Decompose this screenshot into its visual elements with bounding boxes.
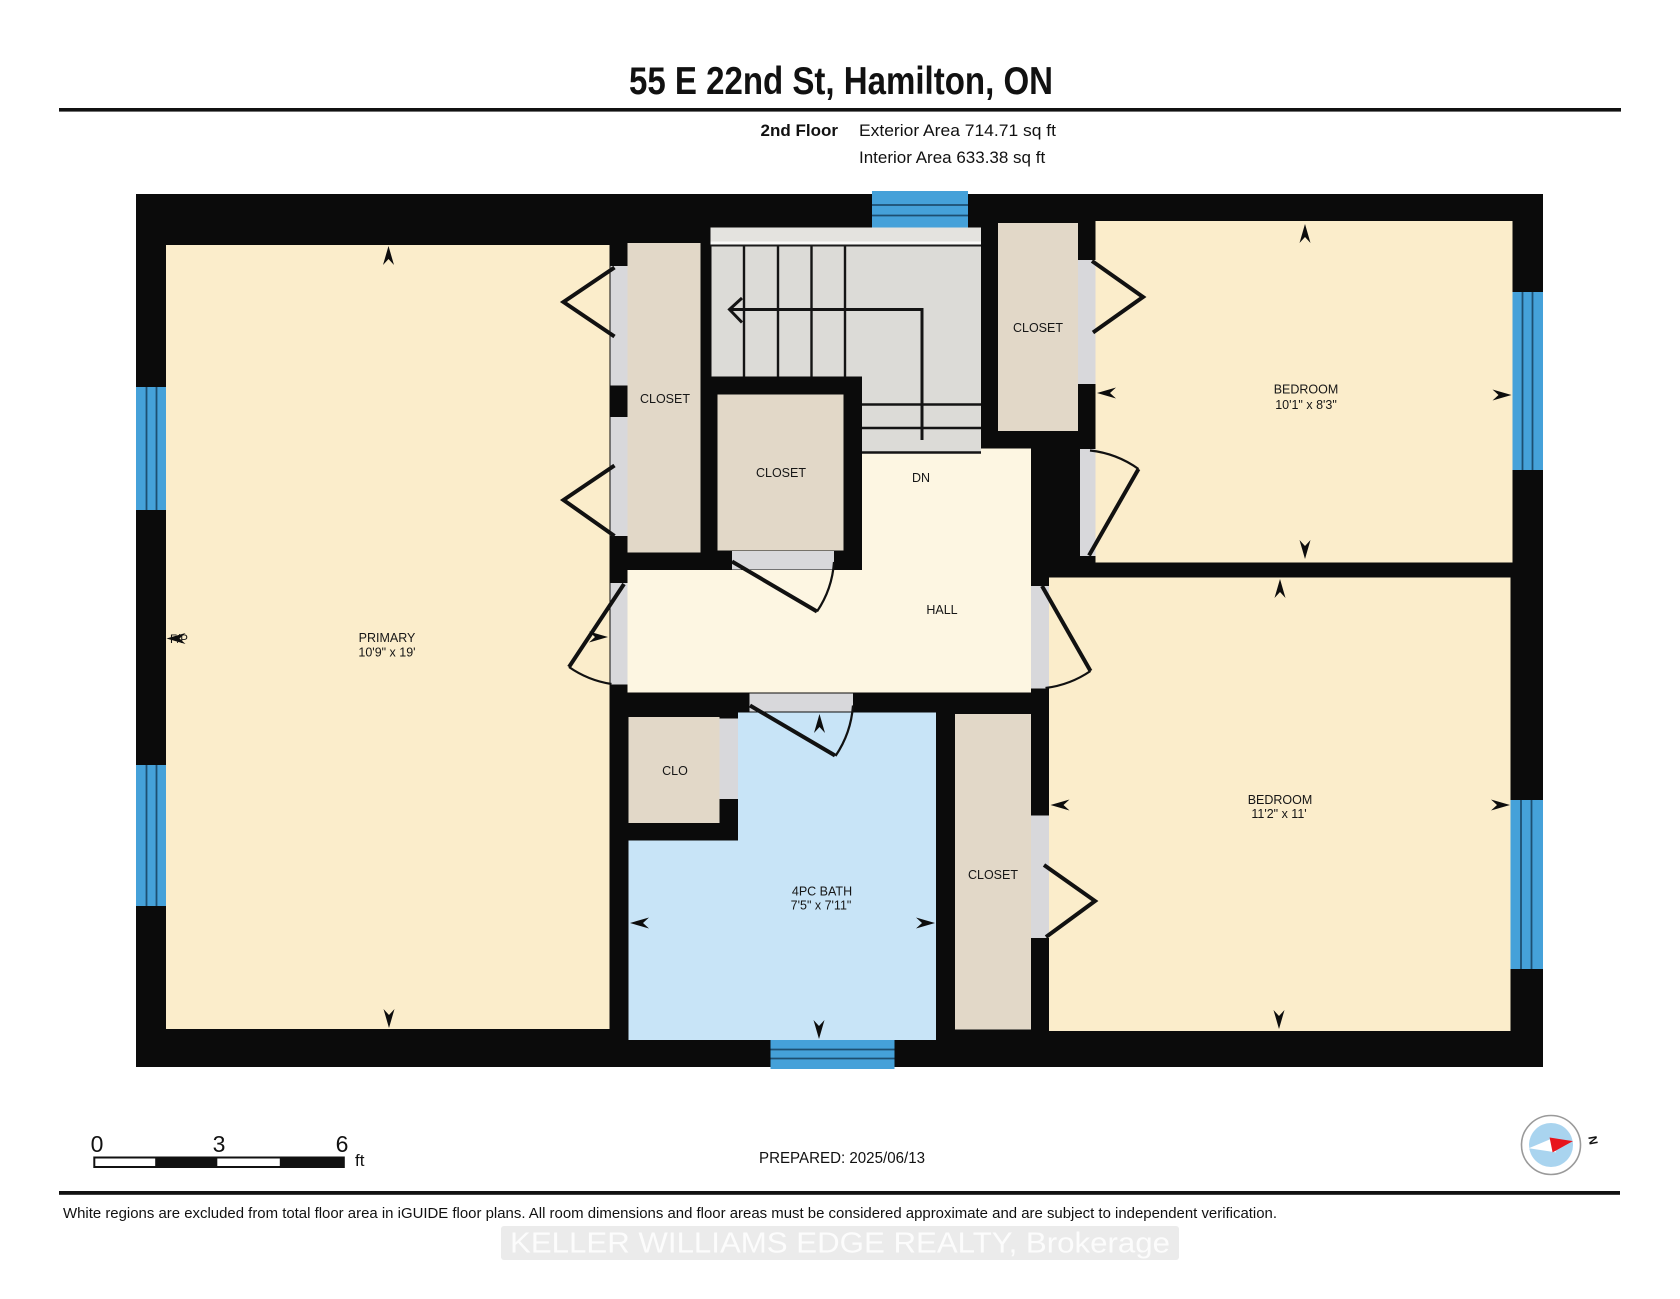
svg-text:CLOSET: CLOSET [1013,321,1063,335]
svg-text:CLOSET: CLOSET [756,466,806,480]
svg-text:Interior Area 633.38 sq ft: Interior Area 633.38 sq ft [859,148,1045,167]
svg-text:BEDROOM: BEDROOM [1274,383,1339,397]
svg-text:3: 3 [213,1131,226,1157]
svg-text:DN: DN [912,471,930,485]
svg-text:CLOSET: CLOSET [640,392,690,406]
svg-text:BEDROOM: BEDROOM [1248,793,1313,807]
svg-text:10'9" x 19': 10'9" x 19' [358,646,415,660]
svg-text:55 E 22nd St, Hamilton, ON: 55 E 22nd St, Hamilton, ON [629,60,1053,103]
svg-text:6: 6 [336,1131,349,1157]
svg-text:0: 0 [91,1131,104,1157]
svg-text:4PC BATH: 4PC BATH [792,885,852,899]
svg-text:2nd Floor: 2nd Floor [761,121,839,140]
svg-text:10'1" x 8'3": 10'1" x 8'3" [1275,398,1337,412]
svg-text:HALL: HALL [926,603,957,617]
svg-text:CLO: CLO [662,764,688,778]
svg-text:KELLER WILLIAMS EDGE REALTY, B: KELLER WILLIAMS EDGE REALTY, Brokerage [510,1228,1170,1260]
svg-text:PREPARED: 2025/06/13: PREPARED: 2025/06/13 [759,1150,925,1167]
svg-text:7'5" x 7'11": 7'5" x 7'11" [791,899,852,913]
svg-text:11'2" x 11': 11'2" x 11' [1251,807,1306,821]
svg-text:PRIMARY: PRIMARY [359,631,416,645]
svg-text:ft: ft [355,1151,365,1170]
svg-text:CLOSET: CLOSET [968,868,1018,882]
svg-text:F/P: F/P [170,634,188,646]
svg-text:Exterior Area 714.71 sq ft: Exterior Area 714.71 sq ft [859,121,1056,140]
svg-text:White regions are excluded fro: White regions are excluded from total fl… [63,1205,1277,1222]
